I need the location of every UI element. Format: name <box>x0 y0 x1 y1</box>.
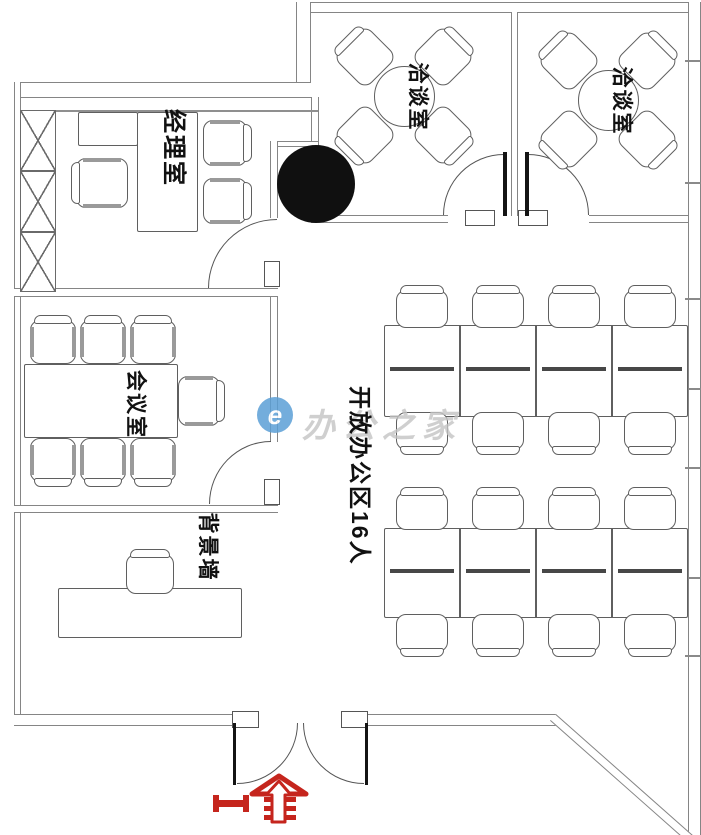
chair-backrest <box>552 648 596 657</box>
open-chair-15 <box>548 614 600 652</box>
desk-screen-1 <box>466 367 530 371</box>
cabinet-cell-2 <box>20 232 56 292</box>
wall-conference-bottom <box>14 505 278 513</box>
conference-table <box>24 364 178 438</box>
open-chair-1 <box>396 290 448 328</box>
room-label-open-office: 开放办公区16人 <box>344 386 372 560</box>
doorframe-meeting1 <box>465 210 495 226</box>
chair-armrest <box>122 327 126 357</box>
wall-tick-2 <box>685 298 701 300</box>
wall-tick-1 <box>685 182 701 184</box>
chair-backrest <box>628 446 672 455</box>
chair-armrest <box>30 327 34 357</box>
chair-backrest <box>476 446 520 455</box>
chair-backrest <box>400 285 444 294</box>
chair-backrest <box>332 24 365 57</box>
conference-chair-top-1 <box>30 320 76 364</box>
open-chair-10 <box>472 492 524 530</box>
cabinet-cell-1 <box>20 171 56 232</box>
desk-screen-3 <box>618 367 682 371</box>
reception-chair <box>126 554 174 594</box>
floor-plan: 经理室 洽谈室 洽谈室 会议室 开放办公区16人 背景墙 e 办公之家 <box>0 0 701 835</box>
wall-meeting-bottom-b <box>589 215 688 223</box>
desk-partition-2 <box>611 325 613 417</box>
chair-backrest <box>552 487 596 496</box>
chair-backrest <box>243 182 252 220</box>
desk-screen-5 <box>466 569 530 573</box>
chair-backrest <box>628 285 672 294</box>
chair-armrest <box>80 327 84 357</box>
conference-chair-top-3 <box>130 320 176 364</box>
wall-manager-top <box>14 82 311 98</box>
conference-chair-bottom-2 <box>80 438 126 482</box>
wall-right <box>688 2 701 835</box>
chair-backrest <box>243 124 252 162</box>
doorleaf-meeting1 <box>503 152 507 216</box>
chair-backrest <box>130 549 170 558</box>
chair-armrest <box>185 376 213 380</box>
chair-backrest <box>628 487 672 496</box>
doorframe-entrance-left <box>232 711 259 728</box>
conference-chair-bottom-1 <box>30 438 76 482</box>
open-chair-16 <box>624 614 676 652</box>
chair-backrest <box>400 648 444 657</box>
desk-screen-4 <box>390 569 454 573</box>
chair-backrest <box>628 648 672 657</box>
chair-armrest <box>83 158 121 162</box>
desk-partition-3 <box>459 528 461 618</box>
doorframe-entrance-right <box>341 711 368 728</box>
open-chair-12 <box>624 492 676 530</box>
chair-armrest <box>210 162 240 166</box>
doorframe-meeting2 <box>518 210 548 226</box>
wall-meeting-divider <box>511 12 518 216</box>
chair-backrest <box>34 315 72 324</box>
wall-diagonal <box>550 714 695 835</box>
doorleaf-entrance-right <box>365 723 368 785</box>
chair-backrest <box>536 28 569 61</box>
room-label-meeting-room-2: 洽谈室 <box>608 66 632 136</box>
wall-tick-0 <box>685 60 701 62</box>
chair-backrest <box>443 24 476 57</box>
open-chair-4 <box>624 290 676 328</box>
open-chair-11 <box>548 492 600 530</box>
chair-backrest <box>400 446 444 455</box>
wall-bottom-mid <box>367 714 556 726</box>
chair-backrest <box>647 139 680 172</box>
chair-armrest <box>130 327 134 357</box>
open-chair-13 <box>396 614 448 652</box>
chair-armrest <box>83 204 121 208</box>
desk-partition-5 <box>611 528 613 618</box>
chair-armrest <box>30 445 34 475</box>
chair-armrest <box>130 445 134 475</box>
open-chair-14 <box>472 614 524 652</box>
chair-backrest <box>476 487 520 496</box>
manager-guest-chair-2 <box>203 178 247 224</box>
wall-tick-4 <box>685 467 701 469</box>
conference-chair-bottom-3 <box>130 438 176 482</box>
chair-armrest <box>185 422 213 426</box>
chair-armrest <box>210 120 240 124</box>
chair-backrest <box>84 315 122 324</box>
room-label-conference-room: 会议室 <box>122 370 146 434</box>
chair-armrest <box>172 445 176 475</box>
chair-armrest <box>210 178 240 182</box>
room-label-feature-wall: 背景墙 <box>194 512 218 582</box>
chair-backrest <box>476 648 520 657</box>
chair-backrest <box>134 478 172 487</box>
open-chair-3 <box>548 290 600 328</box>
chair-armrest <box>72 327 76 357</box>
manager-guest-chair-1 <box>203 120 247 166</box>
conference-chair-top-2 <box>80 320 126 364</box>
chair-armrest <box>172 327 176 357</box>
chair-armrest <box>80 445 84 475</box>
watermark-text: 办公之家 <box>302 399 462 447</box>
watermark-logo-icon: e <box>257 397 293 433</box>
chair-armrest <box>210 220 240 224</box>
doorswing-conference <box>209 441 271 504</box>
open-chair-6 <box>472 412 524 450</box>
open-chair-7 <box>548 412 600 450</box>
open-chair-9 <box>396 492 448 530</box>
chair-backrest <box>552 446 596 455</box>
room-label-manager-office: 经理室 <box>158 106 186 190</box>
open-chair-8 <box>624 412 676 450</box>
desk-screen-6 <box>542 569 606 573</box>
doorswing-entrance-right <box>303 723 364 784</box>
desk-partition-1 <box>535 325 537 417</box>
desk-partition-4 <box>535 528 537 618</box>
wall-tick-6 <box>685 655 701 657</box>
chair-backrest <box>647 28 680 61</box>
desk-screen-7 <box>618 569 682 573</box>
manager-sideboard <box>78 112 138 146</box>
desk-screen-2 <box>542 367 606 371</box>
cabinet-cell-0 <box>20 110 56 171</box>
chair-armrest <box>122 445 126 475</box>
room-label-meeting-room-1: 洽谈室 <box>404 62 428 132</box>
chair-backrest <box>34 478 72 487</box>
wall-bottom-left <box>14 714 233 726</box>
wall-top <box>296 2 700 13</box>
chair-backrest <box>84 478 122 487</box>
chair-backrest <box>216 380 225 422</box>
desk-screen-0 <box>390 367 454 371</box>
chair-backrest <box>400 487 444 496</box>
doorframe-conference <box>264 479 280 505</box>
chair-backrest <box>476 285 520 294</box>
manager-chair <box>76 158 128 208</box>
reception-desk <box>58 588 242 638</box>
brand-logo-icon <box>212 772 312 827</box>
chair-armrest <box>72 445 76 475</box>
chair-backrest <box>134 315 172 324</box>
black-dot-marker <box>277 145 355 223</box>
open-chair-2 <box>472 290 524 328</box>
conference-chair-head <box>178 376 220 426</box>
doorleaf-meeting2 <box>525 152 529 216</box>
chair-backrest <box>71 162 80 204</box>
chair-backrest <box>552 285 596 294</box>
doorframe-manager <box>264 261 280 287</box>
